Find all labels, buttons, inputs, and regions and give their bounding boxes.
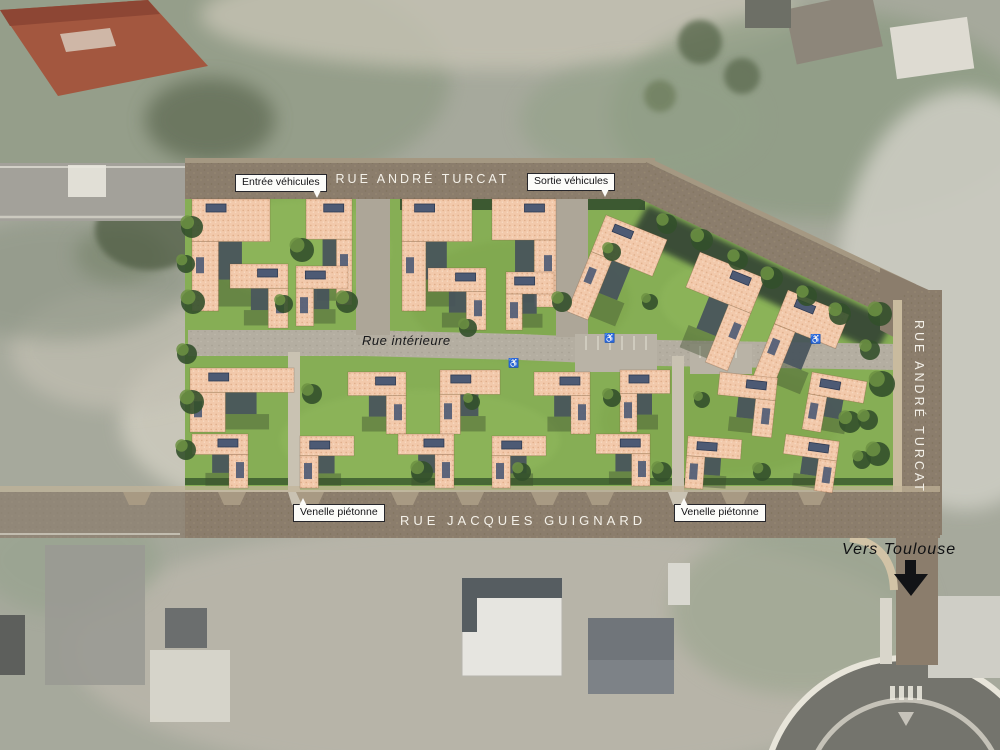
callout-tail-icon <box>601 189 609 197</box>
pedestrian-alley-right-label: Venelle piétonne <box>681 506 759 518</box>
direction-vers-toulouse-label: Vers Toulouse <box>842 541 956 559</box>
direction-arrow-icon <box>894 574 928 596</box>
exit-vehicles-callout: Sortie véhicules <box>527 173 615 191</box>
aerial-base: ♿ ♿ ♿ <box>0 0 1000 750</box>
street-label-rue-jacques-guignard: RUE JACQUES GUIGNARD <box>400 513 610 528</box>
accessible-parking-icon: ♿ <box>604 332 615 343</box>
callout-tail-icon <box>680 498 688 506</box>
exit-vehicles-label: Sortie véhicules <box>534 175 608 187</box>
street-label-rue-interieure: Rue intérieure <box>362 333 451 348</box>
accessible-parking-icon: ♿ <box>508 357 519 368</box>
callout-tail-icon <box>299 498 307 506</box>
entrance-vehicles-callout: Entrée véhicules <box>235 174 327 192</box>
pedestrian-alley-right-callout: Venelle piétonne <box>674 504 766 522</box>
entrance-vehicles-label: Entrée véhicules <box>242 176 320 188</box>
pedestrian-alley-left-label: Venelle piétonne <box>300 506 378 518</box>
accessible-parking-icon: ♿ <box>810 333 821 344</box>
road-bottom <box>0 486 940 538</box>
street-label-rue-andre-turcat-right: RUE ANDRÉ TURCAT <box>912 320 926 482</box>
site-plan-map: ♿ ♿ ♿ RUE ANDRÉ TURCAT RUE ANDRÉ TURCAT … <box>0 0 1000 750</box>
street-label-rue-andre-turcat-top: RUE ANDRÉ TURCAT <box>290 172 555 186</box>
callout-tail-icon <box>313 190 321 198</box>
pedestrian-alley-left-callout: Venelle piétonne <box>293 504 385 522</box>
